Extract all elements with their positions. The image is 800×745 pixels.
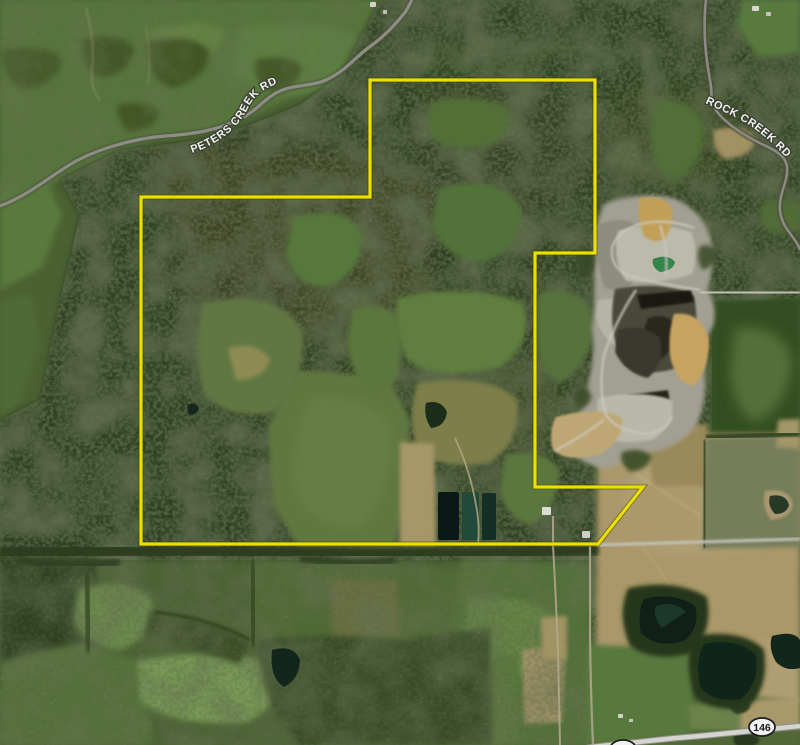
svg-text:146: 146 [753, 722, 771, 734]
